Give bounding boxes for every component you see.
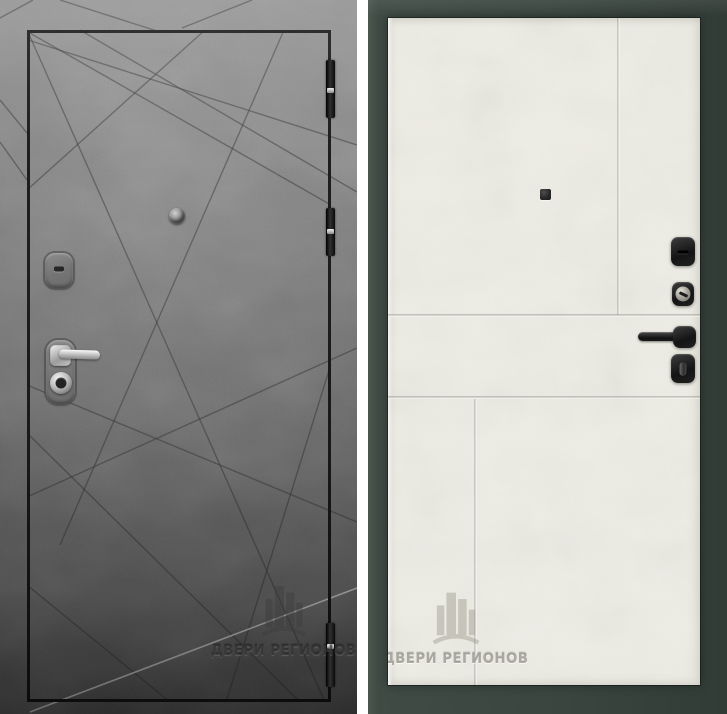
hinge-pin bbox=[327, 88, 334, 93]
key-cylinder-knob bbox=[672, 282, 694, 306]
hinge-bottom-icon bbox=[326, 623, 335, 687]
interior-door-leaf: ДВЕРИ РЕГИОНОВ bbox=[388, 18, 700, 685]
cylinder-chrome-icon bbox=[676, 287, 691, 302]
hinge-pin bbox=[327, 229, 334, 234]
panel-divider-gap bbox=[357, 0, 368, 714]
thumbturn-knob-icon bbox=[680, 362, 687, 376]
door-product-photo: ДВЕРИ РЕГИОНОВ bbox=[0, 0, 727, 714]
peephole-icon bbox=[540, 189, 551, 200]
hinge-middle-icon bbox=[326, 208, 335, 256]
panel-groove-vertical-lower bbox=[474, 399, 477, 685]
hinge-pin bbox=[327, 644, 334, 649]
door-exterior-panel: ДВЕРИ РЕГИОНОВ bbox=[0, 0, 357, 714]
keyhole-cover-icon bbox=[678, 251, 689, 254]
panel-groove-horizontal-2 bbox=[388, 396, 700, 399]
lever-handle bbox=[59, 349, 100, 359]
door-interior-panel: ДВЕРИ РЕГИОНОВ bbox=[368, 0, 727, 714]
key-cylinder bbox=[50, 372, 72, 394]
panel-groove-horizontal-1 bbox=[388, 314, 700, 317]
lock-escutcheon bbox=[671, 237, 695, 266]
plaster-texture bbox=[388, 18, 700, 685]
hinge-top-icon bbox=[326, 60, 335, 118]
peephole-icon bbox=[169, 208, 185, 224]
keyhole-icon bbox=[54, 267, 64, 272]
panel-groove-vertical-upper bbox=[617, 18, 620, 315]
cylinder-keyway-icon bbox=[56, 378, 67, 389]
handle-rosette bbox=[673, 326, 696, 348]
thumbturn-lock bbox=[671, 354, 695, 383]
keyhole-escutcheon bbox=[45, 253, 73, 288]
